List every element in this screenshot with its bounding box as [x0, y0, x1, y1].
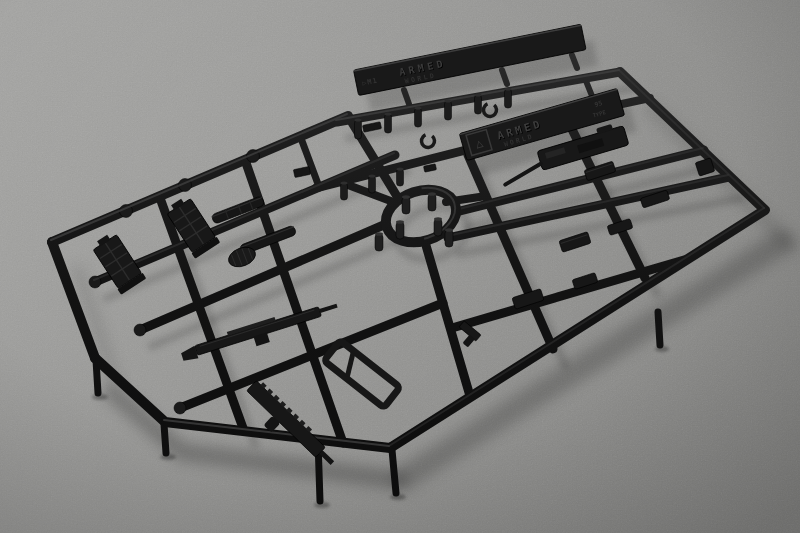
support-foot — [164, 424, 166, 453]
photo-canvas: ▷M1 ARMED ARMED WORLD △ ARMED ARMED WORL… — [0, 0, 800, 533]
sprue-photo: ▷M1 ARMED ARMED WORLD △ ARMED ARMED WORL… — [0, 0, 800, 533]
support-foot — [96, 360, 98, 393]
support-foot — [392, 450, 396, 493]
support-foot — [658, 312, 660, 345]
